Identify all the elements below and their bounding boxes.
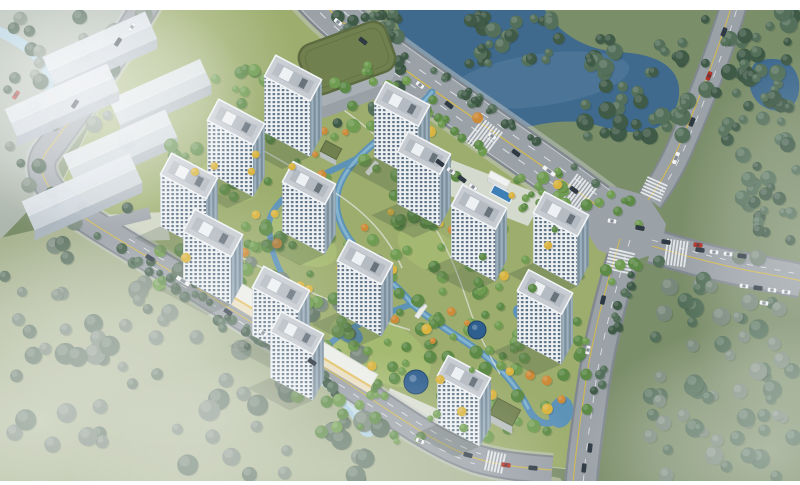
aerial-rendering-canvas: Aerial rendering of a riverside resident… — [0, 0, 800, 485]
masterplan-rendering: Aerial rendering of a riverside resident… — [0, 0, 800, 485]
blue-canopy — [468, 321, 486, 339]
bottom-margin — [0, 481, 800, 485]
top-margin — [0, 0, 800, 10]
